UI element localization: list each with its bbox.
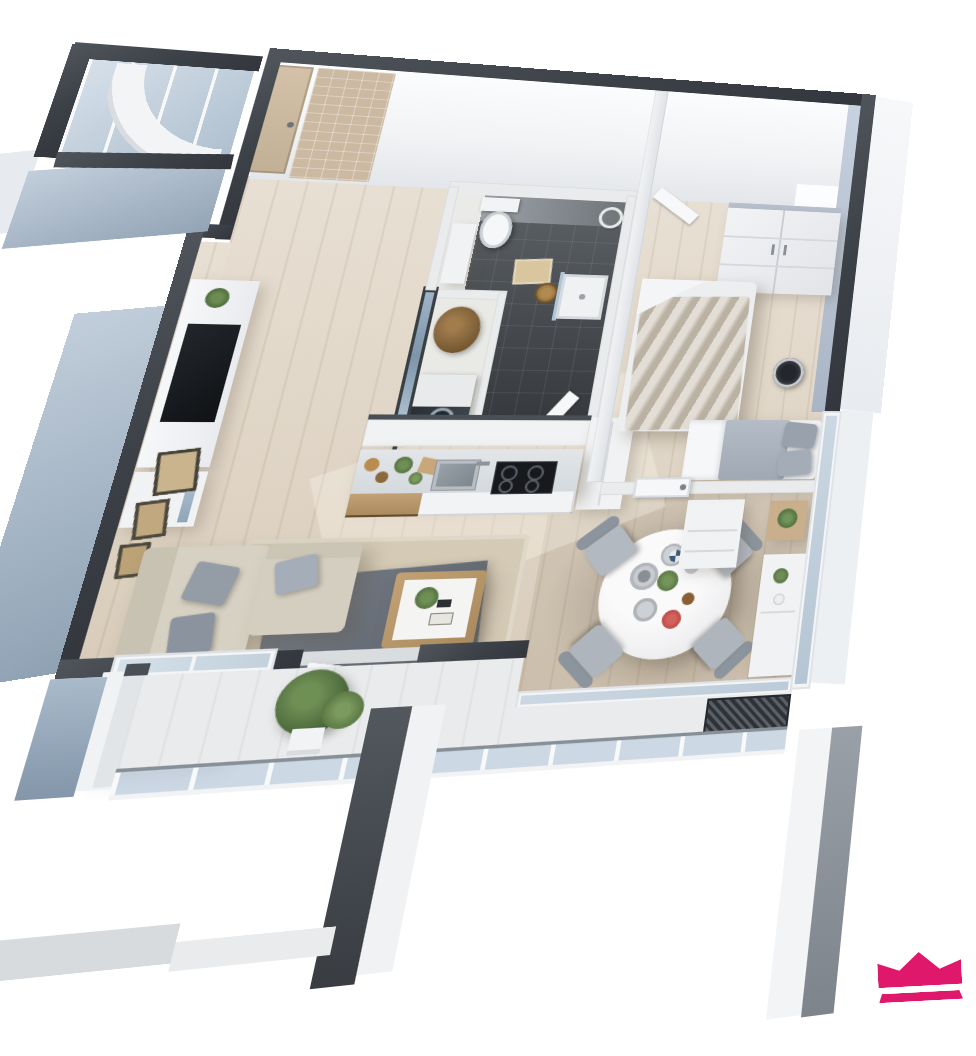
shower-tray xyxy=(555,274,609,320)
dresser-line xyxy=(685,549,735,552)
bed-main xyxy=(616,279,757,432)
balcony-plant-pot xyxy=(286,727,325,755)
apartment-plan xyxy=(56,48,876,790)
plate-1 xyxy=(628,562,660,590)
wardrobe-handle xyxy=(783,245,787,255)
sideboard-cactus-icon xyxy=(772,568,789,584)
porch-curved-screen xyxy=(88,63,245,160)
coffee-table-books xyxy=(428,612,454,625)
wall-frame-large xyxy=(152,448,201,497)
bath-mat xyxy=(512,259,553,285)
kitchen-cooktop xyxy=(490,461,558,494)
cookie-bowl xyxy=(681,592,695,605)
kitchen-sink xyxy=(430,459,482,490)
kitchen-white-drawers xyxy=(418,491,577,516)
sideboard-vase xyxy=(774,594,784,604)
drain-icon xyxy=(578,294,585,300)
crown-logo xyxy=(871,950,970,1009)
kitchen-upper-cabinets xyxy=(362,420,591,447)
bed-main-blanket xyxy=(624,297,750,432)
toilet-tank xyxy=(480,197,520,212)
side-table-plant-icon xyxy=(776,508,798,528)
door-handle xyxy=(286,122,294,128)
kitchen-wood-drawers xyxy=(345,493,423,517)
coffee-table xyxy=(381,570,488,648)
plant-side-table xyxy=(766,500,809,540)
sink-basin xyxy=(435,464,476,487)
bottom-ledge-strip xyxy=(0,923,180,983)
burner-icon xyxy=(526,465,545,480)
plate-food xyxy=(637,570,652,583)
tv-plant-icon xyxy=(202,288,232,309)
coffee-table-remote xyxy=(436,599,452,607)
burner-icon xyxy=(497,480,514,494)
porch-south-wall xyxy=(53,152,234,169)
bed-pillow-2 xyxy=(777,449,811,477)
centerpiece-plant xyxy=(656,570,680,591)
kitchen-counter-front xyxy=(345,491,576,517)
door-handle xyxy=(679,484,686,490)
red-bowl xyxy=(660,609,682,629)
kitchen-faucet-icon xyxy=(478,461,490,465)
dresser-line xyxy=(688,529,738,532)
wall-frame-small-1 xyxy=(131,498,170,540)
burner-icon xyxy=(524,480,541,493)
burner-icon xyxy=(500,465,520,480)
crown-base-bar xyxy=(879,990,963,1003)
bed-pillow-1 xyxy=(781,421,819,449)
sideboard-line xyxy=(760,610,795,613)
plate-3 xyxy=(632,598,659,622)
bottom-ledge-strip-faint xyxy=(168,926,336,971)
bedroom-door-closed xyxy=(632,477,691,498)
crown-icon xyxy=(877,950,963,988)
wardrobe-handle xyxy=(771,244,775,255)
bedroom-south-wall xyxy=(599,480,817,495)
dresser xyxy=(678,499,745,569)
bed-second xyxy=(681,420,822,480)
floor-plan-render xyxy=(0,0,976,1056)
